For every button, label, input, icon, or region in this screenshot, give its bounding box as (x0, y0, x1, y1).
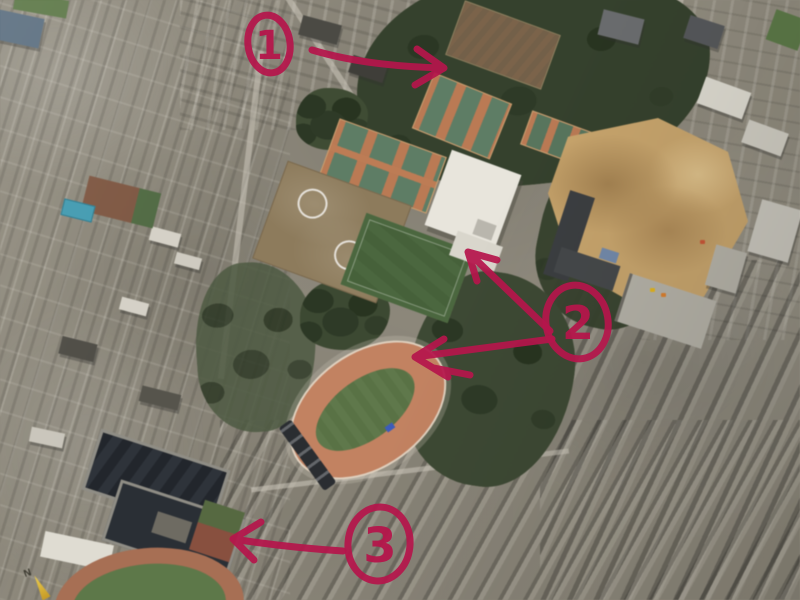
marker-3-digit: 3 (363, 518, 396, 574)
annotated-satellite-map: N 1 2 3 (0, 0, 800, 600)
marker-3-arrow (233, 522, 343, 560)
marker-3: 3 (233, 504, 414, 584)
marker-1-digit: 1 (255, 23, 283, 69)
marker-2-arrow-to-stadium (415, 339, 552, 377)
marker-2: 2 (415, 252, 614, 377)
marker-1: 1 (244, 12, 444, 85)
marker-2-arrow-to-pitches (468, 252, 550, 331)
annotations-overlay: 1 2 3 (0, 0, 800, 600)
marker-1-arrow (312, 49, 444, 85)
marker-2-digit: 2 (562, 296, 594, 350)
